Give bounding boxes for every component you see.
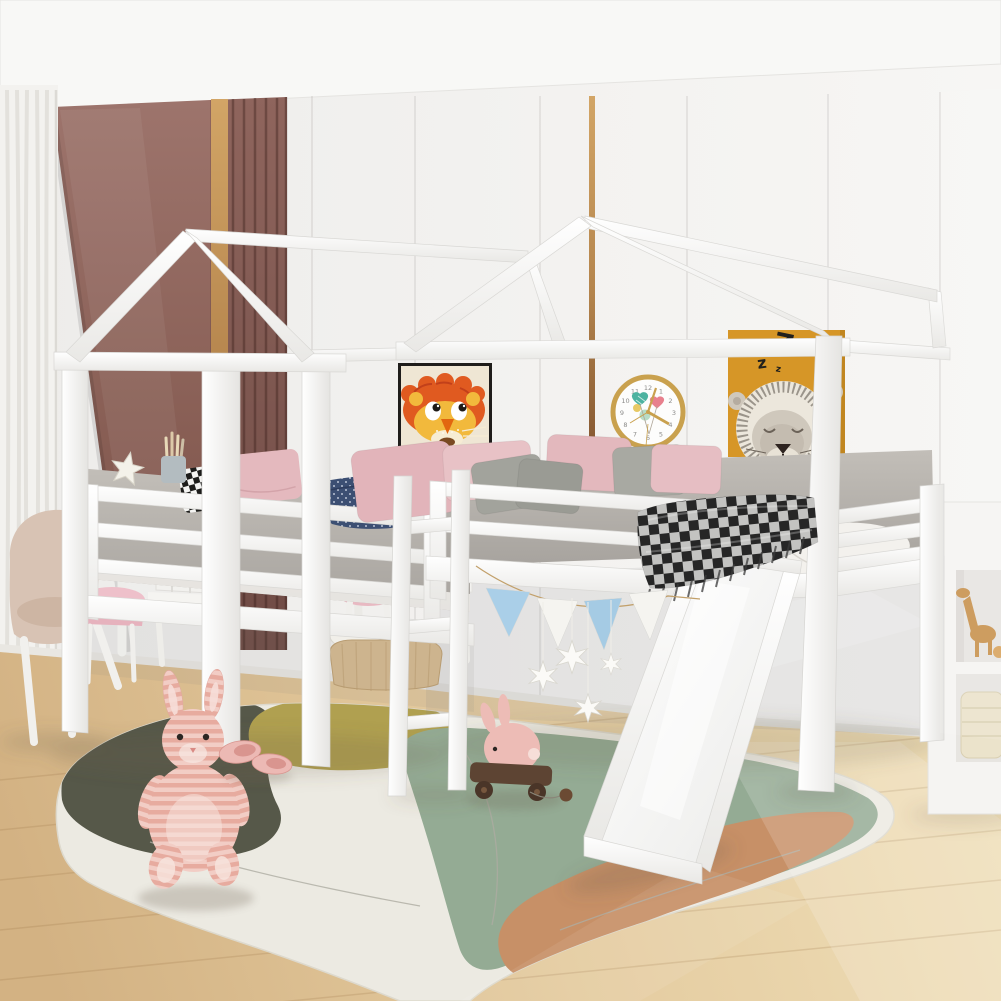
brass-wall-trim — [589, 96, 595, 482]
wall-light — [940, 88, 1001, 740]
scene-svg: 12 1 2 3 4 5 6 7 8 9 10 11 — [0, 0, 1001, 1001]
clock-numeral: 3 — [672, 409, 676, 417]
bunny-eye — [203, 734, 209, 740]
tiger-eye — [433, 404, 441, 412]
clock-numeral: 10 — [621, 397, 629, 405]
tiger-eye — [459, 404, 467, 412]
photo-kids-room: 12 1 2 3 4 5 6 7 8 9 10 11 — [0, 0, 1001, 1001]
ladder-rail-right — [448, 470, 470, 790]
clock-numeral: 5 — [659, 431, 663, 439]
clock-numeral: 1 — [659, 388, 663, 396]
left-bed-post-front-right — [302, 362, 330, 767]
clock-numeral: 7 — [633, 431, 637, 439]
tiger-art-print — [398, 363, 492, 449]
bunny-eye — [177, 734, 183, 740]
clock-numeral: 8 — [623, 421, 627, 429]
clock-numeral: 9 — [620, 409, 624, 417]
pencil-cup — [161, 433, 186, 483]
left-bed-post-front-left — [62, 356, 88, 733]
right-bed-tie-beam — [396, 338, 850, 360]
clock-numeral: 4 — [668, 421, 672, 429]
pull-string-ball — [560, 789, 573, 802]
pull-toy-eye — [493, 747, 497, 751]
clock-numeral: 12 — [644, 384, 652, 392]
clock-numeral: 2 — [668, 397, 672, 405]
